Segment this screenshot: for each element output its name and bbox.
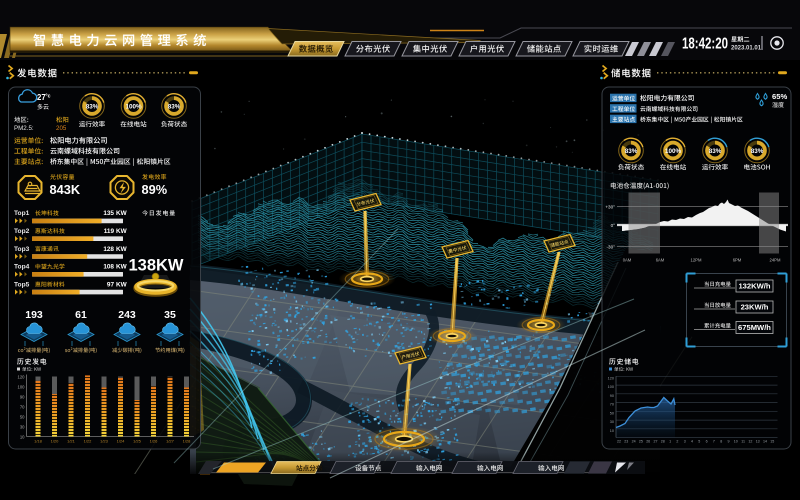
- svg-text:100%: 100%: [665, 148, 682, 155]
- svg-text:Top1: Top1: [14, 210, 30, 217]
- svg-text:83%: 83%: [709, 148, 722, 155]
- svg-text:28: 28: [661, 440, 665, 444]
- svg-text:24: 24: [632, 440, 636, 444]
- svg-text:1/20: 1/20: [51, 439, 60, 444]
- svg-text:843K: 843K: [50, 182, 81, 197]
- svg-text:65%: 65%: [772, 92, 787, 101]
- svg-text:15: 15: [770, 440, 774, 444]
- svg-text:23: 23: [624, 440, 628, 444]
- svg-text:83%: 83%: [168, 103, 181, 110]
- svg-text:KW: KW: [116, 228, 128, 235]
- svg-text:°c: °c: [46, 94, 51, 100]
- svg-text:90: 90: [20, 395, 25, 400]
- svg-text:27: 27: [37, 93, 46, 102]
- svg-text:70: 70: [20, 405, 25, 410]
- svg-text:119: 119: [104, 228, 115, 235]
- svg-text:1/22: 1/22: [84, 439, 93, 444]
- svg-text:30: 30: [610, 420, 614, 424]
- svg-text:1/28: 1/28: [183, 439, 192, 444]
- svg-text:61: 61: [75, 309, 87, 321]
- svg-text:6AM: 6AM: [656, 258, 665, 263]
- svg-text:1/27: 1/27: [166, 439, 175, 444]
- svg-text:+30°: +30°: [605, 204, 615, 209]
- svg-text:90: 90: [610, 394, 614, 398]
- svg-text:97: 97: [107, 281, 115, 288]
- svg-text:4: 4: [691, 440, 693, 444]
- svg-text:205: 205: [56, 125, 67, 132]
- svg-text:27: 27: [654, 440, 658, 444]
- svg-text:14: 14: [763, 440, 767, 444]
- svg-text:135: 135: [103, 210, 114, 217]
- svg-text:KW: KW: [116, 264, 128, 271]
- svg-text:22: 22: [617, 440, 621, 444]
- svg-text:1/18: 1/18: [34, 439, 43, 444]
- svg-text:KW: KW: [116, 246, 128, 253]
- svg-text:11: 11: [741, 440, 745, 444]
- svg-text:8: 8: [720, 440, 722, 444]
- svg-text:9: 9: [728, 440, 730, 444]
- svg-text:KW: KW: [116, 210, 128, 217]
- svg-text:-30°: -30°: [607, 244, 616, 249]
- svg-text:2: 2: [676, 440, 678, 444]
- svg-text:193: 193: [25, 309, 43, 321]
- svg-text:26: 26: [646, 440, 650, 444]
- svg-text:18:42:20: 18:42:20: [682, 36, 728, 53]
- svg-text:PM2.5:: PM2.5:: [14, 125, 34, 132]
- svg-text:100: 100: [18, 385, 26, 390]
- svg-text:1: 1: [669, 440, 671, 444]
- svg-text:2023.01.01: 2023.01.01: [731, 46, 762, 52]
- svg-text:83%: 83%: [751, 148, 764, 155]
- svg-text:12: 12: [748, 440, 752, 444]
- svg-text:25: 25: [639, 440, 643, 444]
- svg-text:3: 3: [684, 440, 686, 444]
- svg-text:10: 10: [734, 440, 738, 444]
- svg-text:35: 35: [164, 309, 176, 321]
- svg-text:1/24: 1/24: [117, 439, 126, 444]
- svg-text:6PM: 6PM: [733, 258, 742, 263]
- svg-text:120: 120: [608, 376, 614, 380]
- svg-text:6: 6: [706, 440, 708, 444]
- svg-text:1/21: 1/21: [67, 439, 76, 444]
- svg-text:1/23: 1/23: [100, 439, 109, 444]
- svg-text:120: 120: [18, 375, 26, 380]
- svg-text:23KW/h: 23KW/h: [741, 303, 769, 312]
- svg-text:100%: 100%: [125, 103, 142, 110]
- svg-text:89%: 89%: [142, 182, 168, 197]
- svg-text:10: 10: [20, 435, 25, 440]
- svg-text:24PM: 24PM: [770, 258, 781, 263]
- svg-text:50: 50: [20, 415, 25, 420]
- svg-text:13: 13: [756, 440, 760, 444]
- svg-text:70: 70: [610, 403, 614, 407]
- svg-text:128: 128: [103, 246, 114, 253]
- svg-text:50: 50: [610, 411, 614, 415]
- svg-text:675MW/h: 675MW/h: [738, 323, 771, 332]
- svg-text:1/25: 1/25: [133, 439, 142, 444]
- svg-text:10: 10: [610, 429, 614, 433]
- svg-text:12PM: 12PM: [691, 258, 702, 263]
- svg-text:30: 30: [20, 425, 25, 430]
- svg-text:138KW: 138KW: [128, 257, 183, 275]
- svg-text:83%: 83%: [86, 103, 99, 110]
- svg-text:Top5: Top5: [14, 281, 30, 288]
- svg-text:Top2: Top2: [14, 228, 30, 235]
- svg-text:KW: KW: [116, 281, 128, 288]
- svg-text:132KW/h: 132KW/h: [738, 282, 770, 291]
- svg-text:83%: 83%: [625, 148, 638, 155]
- svg-text:5: 5: [698, 440, 700, 444]
- svg-text:1/26: 1/26: [150, 439, 159, 444]
- svg-text:Top3: Top3: [14, 246, 30, 253]
- svg-text:100: 100: [608, 385, 614, 389]
- svg-text:243: 243: [118, 309, 136, 321]
- svg-text:7: 7: [713, 440, 715, 444]
- svg-text:108: 108: [103, 264, 114, 271]
- svg-text:0AM: 0AM: [623, 258, 632, 263]
- svg-text:0°: 0°: [611, 223, 616, 228]
- svg-text:Top4: Top4: [14, 264, 30, 271]
